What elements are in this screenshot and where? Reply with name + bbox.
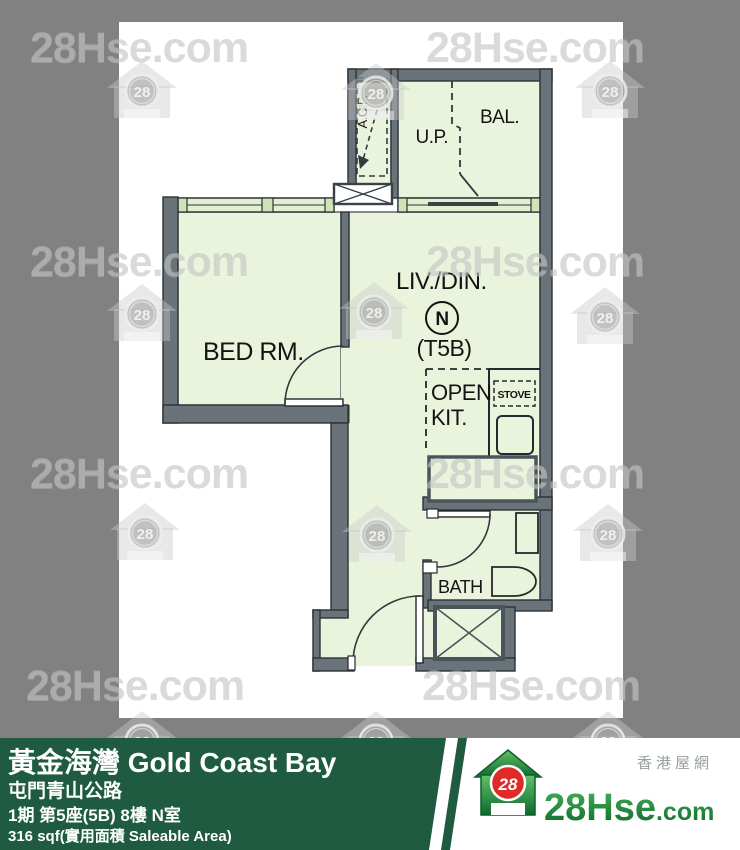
flat-letter-label: N [435,309,448,330]
brand-logo-number: 28 [498,775,518,794]
brand-logo[interactable]: 28 28Hse.com 香港屋網 [460,738,740,850]
open-kitchen-label-1: OPEN [431,380,491,405]
ac-louvre-box [334,184,392,204]
toilet [492,567,536,596]
bedroom-label: BED RM. [203,338,304,366]
bath-label: BATH [438,577,483,597]
brand-tagline: 香港屋網 [637,755,713,772]
estate-name: 黃金海灣 Gold Coast Bay [8,741,336,781]
floorplan-drawing: BED RM. LIV./DIN. N (T5B) OPEN KIT. STOV… [0,0,740,738]
utility-platform-label: U.P. [415,127,448,148]
brand-house-icon: 28 [475,750,541,815]
brand-wordmark: 28Hse.com [544,787,714,829]
ac-platform-label: A.C.P. [355,96,370,129]
balcony-label: BAL. [480,107,519,128]
shaft-box [435,607,503,659]
bath-sink [516,513,538,553]
stove-label: STOVE [498,389,531,401]
living-dining-label: LIV./DIN. [396,268,487,295]
unit-type-label: (T5B) [417,335,472,361]
estate-address: 屯門青山公路 [8,776,122,803]
footer: 黃金海灣 Gold Coast Bay 屯門青山公路 1期 第5座(5B) 8樓… [0,738,740,850]
open-kitchen-label-2: KIT. [431,405,467,430]
area-info: 316 sqf(實用面積 Saleable Area) [8,825,232,846]
room-fills [178,80,540,666]
unit-info: 1期 第5座(5B) 8樓 N室 [8,801,181,826]
